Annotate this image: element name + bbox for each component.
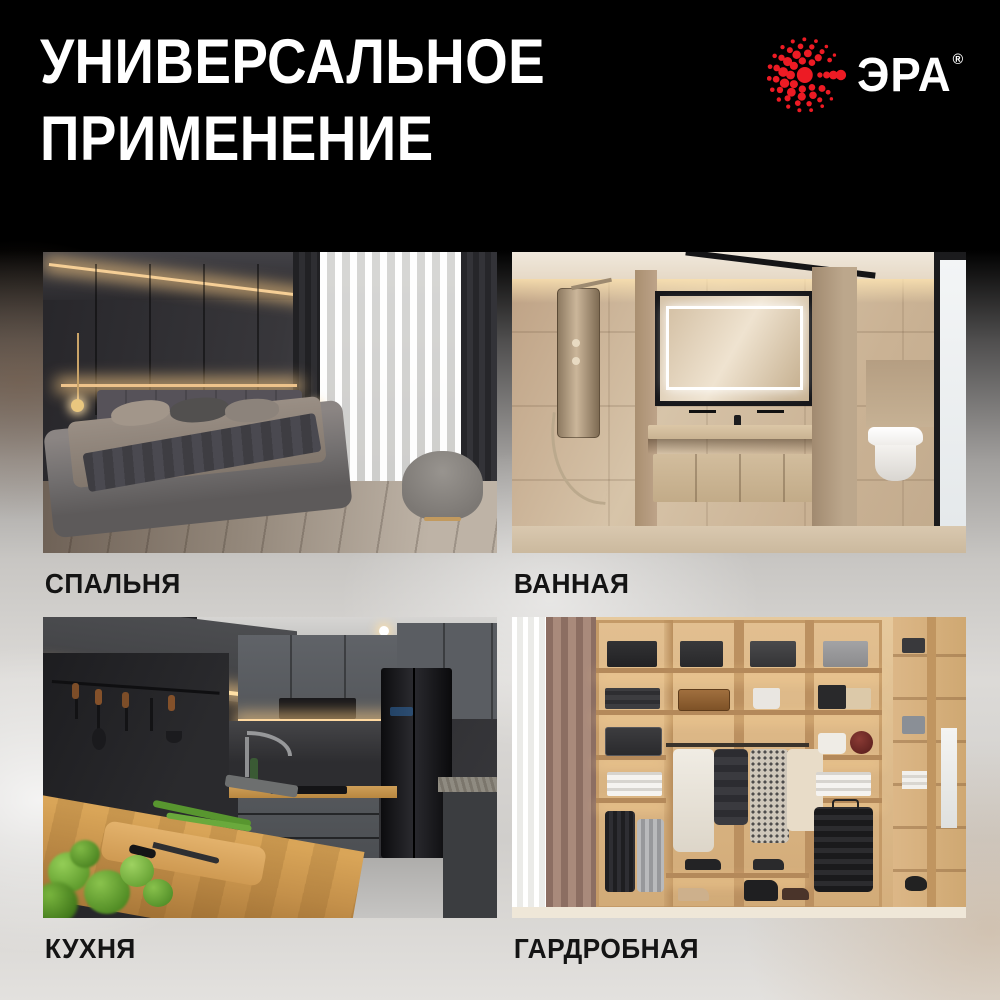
bedroom-armchair xyxy=(402,451,484,520)
wardrobe-shelf-left-4 xyxy=(596,798,666,803)
wardrobe-divider-1 xyxy=(664,620,673,909)
kitchen-hood xyxy=(279,698,356,719)
room-card-kitchen: КУХНЯ xyxy=(43,617,497,982)
kitchen-utensil-skimmer-handle xyxy=(122,692,129,708)
bathroom-floor xyxy=(512,526,966,553)
wardrobe-coat-white xyxy=(673,749,714,851)
wardrobe-towels-right xyxy=(816,772,870,796)
wardrobe-box-2 xyxy=(680,641,723,667)
wardrobe-beige-bag xyxy=(843,688,870,709)
wardrobe-box-3 xyxy=(750,641,795,667)
bathroom-faucet-right xyxy=(757,410,784,413)
wardrobe-photo xyxy=(512,617,966,918)
wardrobe-trunk xyxy=(605,727,661,756)
bedroom-photo xyxy=(43,252,497,553)
wardrobe-right-unit-shoe xyxy=(905,876,928,891)
wardrobe-mirror-sliver xyxy=(941,728,957,827)
wardrobe-shoes-dark-2 xyxy=(753,859,785,870)
kitchen-utensil-ladle2-head xyxy=(166,731,182,743)
kitchen-lime-5 xyxy=(143,879,173,907)
wardrobe-shelf-row-2 xyxy=(596,710,882,715)
kitchen-drawer-seam-1 xyxy=(238,813,379,815)
kitchen-fridge-seam xyxy=(413,668,415,858)
wardrobe-shoes-dark-1 xyxy=(685,859,721,870)
bathroom-faucet-left xyxy=(689,410,716,413)
kitchen-photo xyxy=(43,617,497,918)
wardrobe-towels-left xyxy=(607,772,661,796)
kitchen-utensil-spoon-handle xyxy=(95,689,102,705)
bathroom-counter xyxy=(648,425,834,439)
kitchen-island xyxy=(443,786,497,918)
kitchen-utensil-ladle2-handle xyxy=(168,695,175,711)
brand-name-text: ЭРА xyxy=(857,48,952,103)
kitchen-fridge xyxy=(381,668,451,858)
wardrobe-shelf-bottom xyxy=(666,873,809,878)
kitchen-utensil-whisk xyxy=(150,698,153,731)
brand-name: ЭРА ® xyxy=(857,48,964,103)
brand-logo: ЭРА ® xyxy=(767,33,970,117)
room-label-wardrobe: ГАРДРОБНАЯ xyxy=(512,918,939,982)
title-line-1: УНИВЕРСАЛЬНОЕ xyxy=(40,24,545,101)
wardrobe-shelf-row-1 xyxy=(596,668,882,673)
bedroom-pendant-lamp xyxy=(77,333,79,402)
wardrobe-folded-dark-clothes xyxy=(605,688,659,709)
wardrobe-right-unit-towels xyxy=(902,771,927,789)
wardrobe-floor xyxy=(512,907,966,918)
bathroom-photo xyxy=(512,252,966,553)
wardrobe-suitcase-handle xyxy=(832,799,859,809)
bathroom-toilet-tank-shelf xyxy=(866,360,934,426)
title-line-2: ПРИМЕНЕНИЕ xyxy=(40,101,545,178)
page-title: УНИВЕРСАЛЬНОЕ ПРИМЕНЕНИЕ xyxy=(40,24,545,179)
wardrobe-box-4 xyxy=(823,641,868,667)
registered-trademark: ® xyxy=(953,52,964,67)
wardrobe-suitcase-black-large xyxy=(814,807,873,893)
bedroom-armchair-base xyxy=(424,517,460,521)
room-card-bathroom: ВАННАЯ xyxy=(512,252,966,617)
wardrobe-suitcase-silver xyxy=(637,819,664,893)
room-label-kitchen: КУХНЯ xyxy=(43,918,470,982)
rooms-grid: СПАЛЬНЯ xyxy=(43,252,966,982)
bedroom-headboard-led xyxy=(61,384,297,387)
promo-banner: УНИВЕРСАЛЬНОЕ ПРИМЕНЕНИЕ ЭРА ® xyxy=(0,0,1000,1000)
wardrobe-boots-dark xyxy=(744,880,778,901)
kitchen-fridge-display xyxy=(390,707,413,716)
room-label-bedroom: СПАЛЬНЯ xyxy=(43,553,470,617)
bathroom-shower-hose xyxy=(544,412,615,505)
kitchen-faucet-stem xyxy=(245,737,249,776)
room-label-bathroom: ВАННАЯ xyxy=(512,553,939,617)
wardrobe-shoes-brown xyxy=(782,888,809,900)
bathroom-partition-wall xyxy=(812,267,857,532)
kitchen-lime-6 xyxy=(70,840,100,868)
wardrobe-shelf-left-3 xyxy=(596,755,666,760)
wardrobe-right-unit-bag xyxy=(902,716,925,734)
wardrobe-brown-suitcase xyxy=(678,689,730,711)
bathroom-window-door xyxy=(934,252,966,544)
bathroom-vanity-cabinet xyxy=(653,454,830,502)
bathroom-counter-shadow xyxy=(648,439,834,454)
wardrobe-black-portfolio xyxy=(818,685,845,709)
kitchen-island-granite-top xyxy=(438,777,497,792)
room-card-wardrobe: ГАРДРОБНАЯ xyxy=(512,617,966,982)
wardrobe-handbag-white xyxy=(818,733,845,754)
wardrobe-box-1 xyxy=(607,641,657,667)
era-logo-icon xyxy=(767,33,851,117)
wardrobe-white-bag xyxy=(753,688,780,709)
wardrobe-right-unit-box xyxy=(902,638,925,653)
kitchen-utensil-ladle-handle xyxy=(72,683,79,699)
bathroom-mirror-led-frame xyxy=(666,306,802,390)
wardrobe-rod xyxy=(666,743,809,747)
room-card-bedroom: СПАЛЬНЯ xyxy=(43,252,497,617)
wardrobe-right-unit-divider xyxy=(927,617,936,912)
bathroom-toilet-bowl xyxy=(875,445,916,481)
wardrobe-heels-beige xyxy=(678,888,710,902)
wardrobe-curtain xyxy=(546,617,596,909)
wardrobe-suitcase-black-small xyxy=(605,811,635,892)
wardrobe-jacket-dark xyxy=(714,749,748,824)
wardrobe-robe-houndstooth xyxy=(750,749,789,842)
